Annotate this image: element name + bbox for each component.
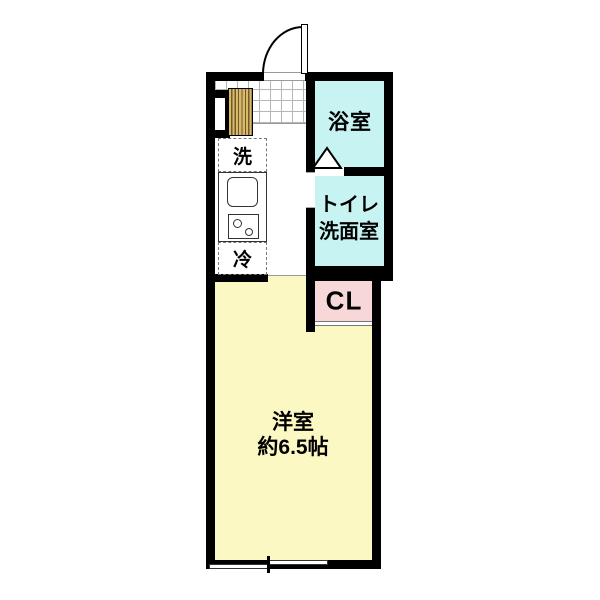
wall-left (206, 72, 215, 569)
toilet-label-line2: 洗面室 (319, 219, 379, 246)
western-room-label-line1: 洋室 (257, 410, 328, 435)
kitchen-sink-icon (227, 177, 258, 207)
entrance-door-leaf-icon (301, 24, 308, 74)
bathroom-label: 浴室 (328, 106, 372, 136)
washing-machine-label: 洗 (233, 142, 252, 169)
stove-burner-icon (245, 228, 253, 236)
wall-kitchen-bottom (206, 274, 268, 282)
western-room-label-line2: 約6.5帖 (257, 435, 328, 460)
floor-plan: 洗 冷 浴室 トイレ 洗面室 CL 洋室 約6.5帖 (0, 0, 600, 600)
western-room-label: 洋室 約6.5帖 (257, 410, 328, 460)
bathroom-folding-door-icon (311, 146, 343, 170)
wall-bath-toilet-divider (344, 167, 393, 176)
shoe-cabinet-icon (228, 88, 253, 136)
window-center-tick (267, 556, 270, 573)
washing-machine-space: 洗 (218, 138, 267, 172)
wall-right-lower (372, 273, 381, 569)
stove-burner-icon (233, 219, 242, 228)
closet-label: CL (326, 286, 363, 317)
refrigerator-space: 冷 (218, 242, 267, 275)
refrigerator-label: 冷 (233, 245, 252, 272)
closet-door-icon (315, 321, 372, 326)
toilet-label-line1: トイレ (319, 192, 379, 219)
sliding-window-icon (267, 560, 328, 565)
entrance-door-swing-icon (262, 26, 303, 74)
wall-right-upper (384, 72, 393, 281)
sliding-window-icon (209, 564, 270, 569)
toilet-door-opening (306, 172, 315, 208)
entrance-fixture-inset (215, 98, 225, 130)
wall-top-right (305, 72, 393, 81)
room-opening-line (268, 275, 306, 276)
stove-icon (228, 214, 259, 239)
toilet-washroom-label: トイレ 洗面室 (319, 192, 379, 246)
